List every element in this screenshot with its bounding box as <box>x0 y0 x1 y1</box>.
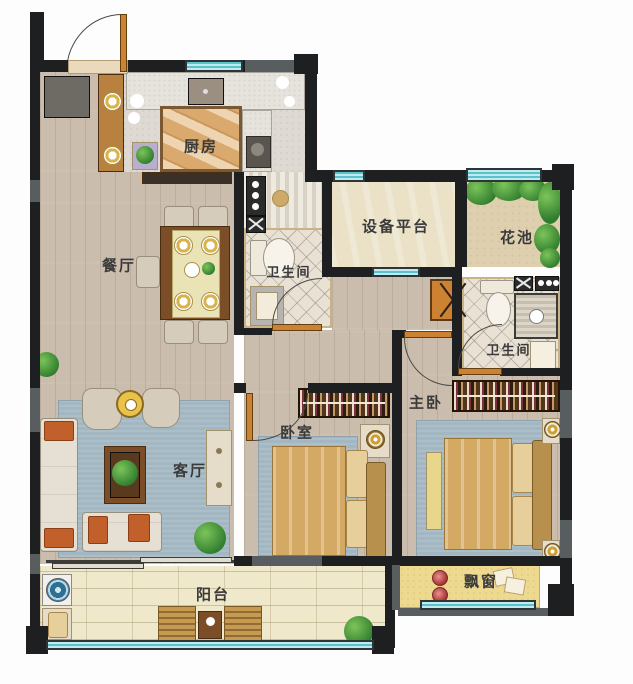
master-pillow <box>512 443 534 493</box>
serving-bowl <box>184 262 200 278</box>
dinner-plate <box>174 292 193 311</box>
cup <box>276 76 289 89</box>
plate-stack <box>128 112 140 124</box>
wardrobe-rail <box>303 402 385 404</box>
room-label-equipment: 设备平台 <box>362 216 430 237</box>
decor-plate <box>103 146 122 165</box>
bedroom-north-wall-b <box>308 383 402 393</box>
table-decor <box>206 617 215 626</box>
lounge-chair <box>158 606 196 644</box>
corner-block <box>372 626 394 654</box>
bath2-door-leaf <box>458 368 502 375</box>
dining-chair <box>164 320 194 344</box>
corner-block <box>26 626 48 654</box>
wardrobe-rail <box>457 395 555 397</box>
top-wall-a <box>30 60 68 72</box>
console-knob <box>216 448 222 454</box>
bed-bench <box>426 452 442 530</box>
cup <box>284 96 295 107</box>
console-cabinet <box>206 430 232 506</box>
bath1-west-wall <box>234 172 244 335</box>
bath2-south-wall-b <box>500 368 560 376</box>
cabinet-knob <box>553 280 559 286</box>
bay-card <box>504 576 526 595</box>
lamp <box>544 421 561 438</box>
table-plant <box>112 460 138 486</box>
right-wall-window <box>560 390 572 438</box>
master-headboard <box>532 440 552 550</box>
left-wall-window <box>30 388 40 432</box>
master-pillow <box>512 496 534 546</box>
right-wall-window <box>560 520 572 558</box>
room-label-bath1: 卫生间 <box>266 262 311 281</box>
equipment-flowerbed-wall <box>455 170 467 267</box>
entry-door-leaf <box>120 14 127 72</box>
cabinet-knob <box>546 280 552 286</box>
corridor-window <box>372 267 420 277</box>
baywindow-west-frame <box>392 565 400 610</box>
sink-drain <box>203 89 208 94</box>
cabinet-knob <box>252 181 259 188</box>
side-table-ring <box>125 399 137 411</box>
bath2-sink <box>530 341 556 369</box>
bath1-door-leaf <box>272 324 322 331</box>
lamp <box>366 430 385 449</box>
left-wall-window <box>30 180 40 202</box>
bedroom-pillow <box>346 450 368 498</box>
dinner-plate <box>201 292 220 311</box>
equipment-window <box>333 170 365 182</box>
sofa-pillow <box>44 421 74 441</box>
bedroom-bed <box>272 446 346 556</box>
cabinet-door <box>48 612 68 638</box>
room-label-living: 客厅 <box>173 460 207 481</box>
balcony-slider-panel <box>140 557 232 563</box>
dining-chair <box>198 320 228 344</box>
sofa-pillow <box>128 514 150 542</box>
entry-door-jamb <box>30 12 44 64</box>
console-knob <box>216 482 222 488</box>
baywindow-glass <box>420 600 536 610</box>
room-label-bedroom: 卧室 <box>280 422 314 443</box>
bedroom-headboard <box>366 462 386 558</box>
left-wall-window <box>30 554 40 574</box>
fridge <box>44 76 90 118</box>
decor-plate <box>103 92 122 111</box>
room-label-balcony: 阳台 <box>196 584 230 605</box>
entry-door-arc <box>66 14 122 72</box>
corner-block <box>548 584 574 616</box>
room-label-bath2: 卫生间 <box>486 340 531 359</box>
master-bed <box>444 438 512 550</box>
master-west-wall <box>392 338 402 556</box>
room-label-dining: 餐厅 <box>102 255 136 276</box>
south-wall-window <box>252 556 322 566</box>
bedroom-pillow <box>346 500 368 548</box>
washer-drum <box>46 578 70 602</box>
salad-bowl <box>202 262 215 275</box>
kitchen-window <box>185 60 243 72</box>
water-heater <box>272 190 289 207</box>
bedroom-north-wall-a <box>234 383 246 393</box>
toilet <box>486 292 511 327</box>
cabinet-knob <box>252 192 259 199</box>
bay-flower <box>432 570 448 586</box>
plate-stack <box>130 94 144 108</box>
armchair <box>142 388 180 428</box>
sofa-pillow <box>44 528 74 548</box>
bedroom-door-leaf <box>246 393 253 441</box>
dining-chair <box>136 256 160 288</box>
balcony-glass <box>46 640 374 650</box>
cabinet-knob <box>252 203 259 210</box>
master-door-leaf <box>404 331 452 338</box>
room-label-baywindow: 飘窗 <box>464 571 498 592</box>
corner-block <box>294 54 318 74</box>
balcony-slider-panel <box>52 563 144 569</box>
room-label-flowerbed: 花池 <box>500 227 534 248</box>
flowerbed-window <box>466 168 542 182</box>
dinner-plate <box>201 236 220 255</box>
floor-plan: 厨房 餐厅 卫生间 设备平台 花池 卫生间 主卧 卧室 客厅 阳台 飘窗 <box>0 0 633 684</box>
living-plant <box>194 522 226 554</box>
corner-block <box>552 164 574 190</box>
kitchen-bar <box>142 172 232 184</box>
burner <box>251 143 264 156</box>
lounge-chair <box>224 606 262 644</box>
bath1-south-wall <box>244 328 272 335</box>
shower-drain <box>529 309 544 324</box>
room-label-kitchen: 厨房 <box>184 136 218 157</box>
herb-plant <box>136 146 154 164</box>
room-label-master: 主卧 <box>409 392 443 413</box>
cabinet-knob <box>538 280 544 286</box>
kitchen-east-wall <box>305 60 317 182</box>
bath1-east-wall <box>322 172 332 277</box>
flowerbed-plants <box>540 248 560 268</box>
dinner-plate <box>174 236 193 255</box>
sofa-pillow <box>88 516 108 544</box>
